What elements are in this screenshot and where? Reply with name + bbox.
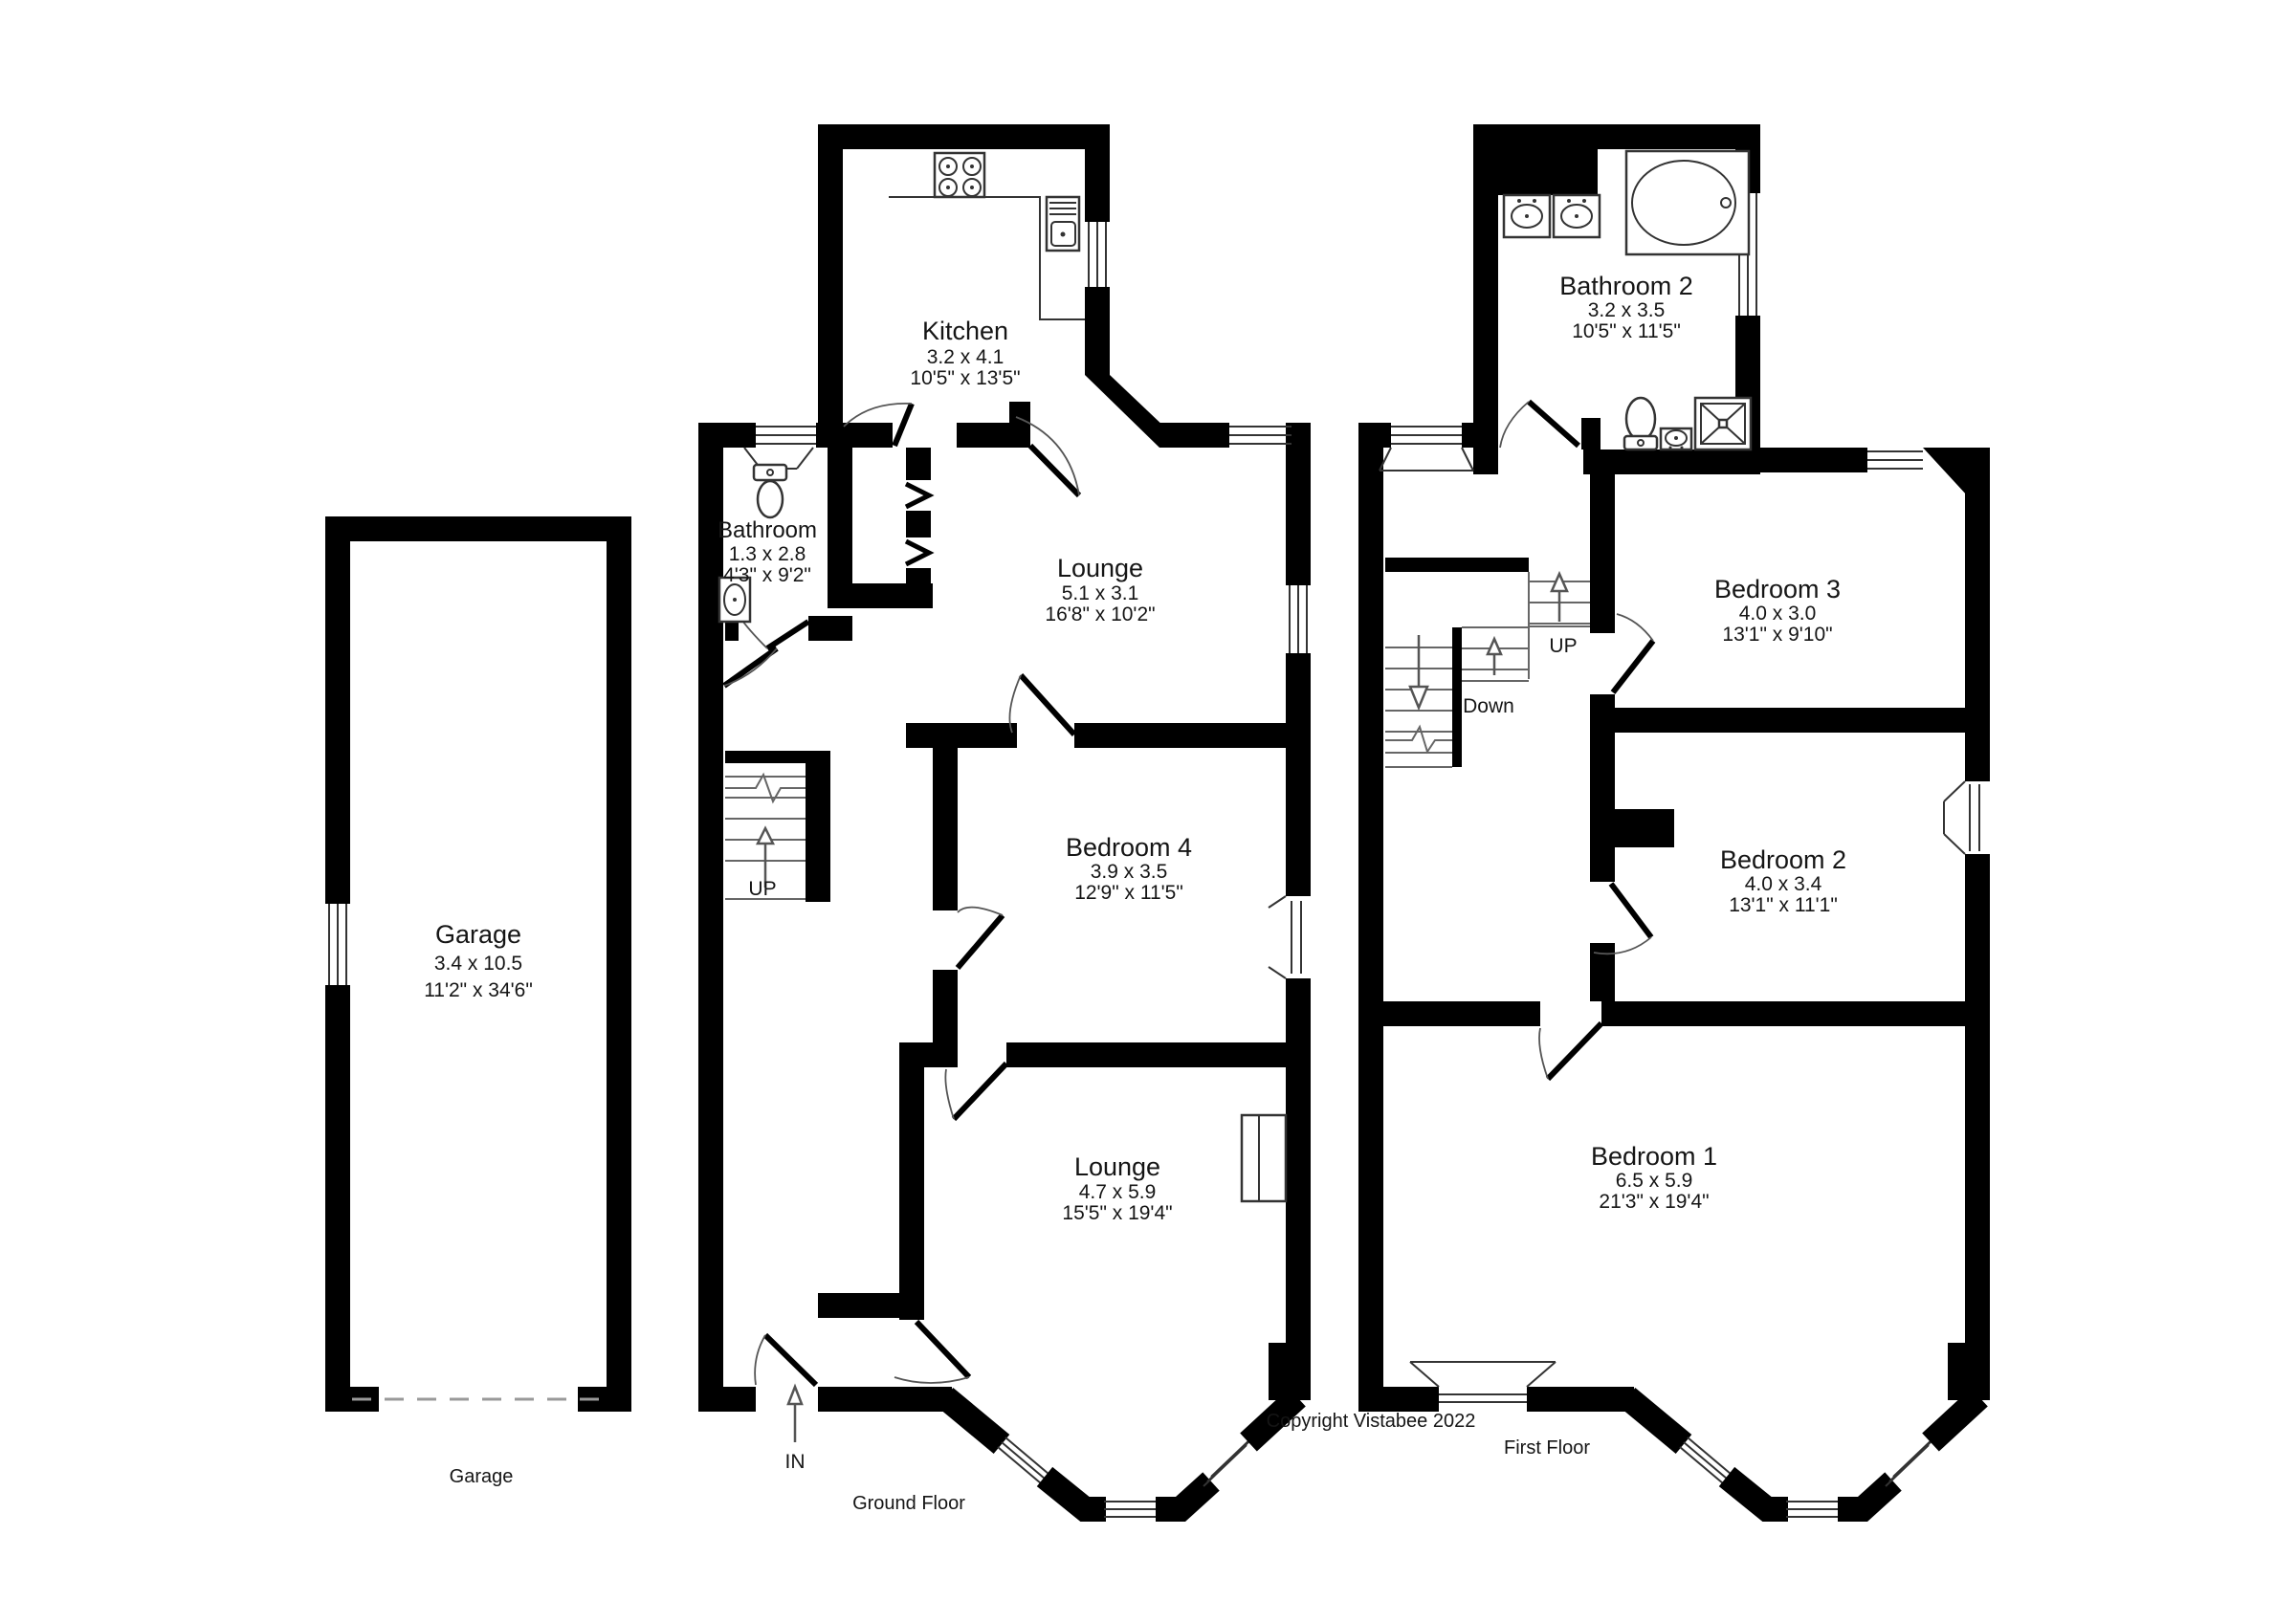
ground-interior-walls — [725, 448, 1311, 1320]
bedroom4-dims-ft: 12'9" x 11'5" — [1074, 882, 1183, 904]
bathroom2-basin-1 — [1504, 195, 1550, 237]
ground-bay-window — [945, 1397, 1297, 1517]
first-floor-plan: UP Down — [1358, 124, 1990, 1517]
bedroom2-dims-m: 4.0 x 3.4 — [1745, 873, 1822, 895]
room-label-bedroom4: Bedroom 4 3.9 x 3.5 12'9" x 11'5" — [1066, 833, 1192, 904]
lounge-bottom-top-door — [945, 1064, 1006, 1119]
floorplan-page: Garage 3.4 x 10.5 11'2" x 34'6" Garage — [0, 0, 2296, 1623]
bedroom3-window — [1867, 451, 1923, 469]
copyright-text: Copyright Vistabee 2022 — [1267, 1411, 1476, 1432]
bedroom4-window — [1269, 896, 1301, 978]
lounge-top-dims-ft: 16'8" x 10'2" — [1045, 603, 1155, 625]
room-label-bathroom2: Bathroom 2 3.2 x 3.5 10'5" x 11'5" — [1559, 272, 1693, 342]
lounge-top-window-top — [1229, 427, 1291, 444]
first-floor-label: First Floor — [1504, 1437, 1590, 1459]
bedroom3-dims-m: 4.0 x 3.0 — [1739, 603, 1817, 625]
floorplan-drawing: Garage 3.4 x 10.5 11'2" x 34'6" Garage — [0, 0, 2296, 1623]
bedroom4-name: Bedroom 4 — [1066, 833, 1192, 862]
room-label-garage: Garage 3.4 x 10.5 11'2" x 34'6" — [424, 920, 533, 1001]
first-bay-window — [1627, 1397, 1979, 1517]
bedroom3-door — [1613, 614, 1653, 692]
bedroom2-name: Bedroom 2 — [1720, 845, 1846, 874]
kitchen-name: Kitchen — [922, 317, 1008, 345]
entrance-door: IN — [755, 1335, 816, 1473]
bathroom2-dims-ft: 10'5" x 11'5" — [1572, 320, 1681, 342]
bedroom3-dims-ft: 13'1" x 9'10" — [1722, 624, 1832, 646]
lounge-top-window-right — [1290, 585, 1307, 653]
room-label-lounge-bottom: Lounge 4.7 x 5.9 15'5" x 19'4" — [1062, 1152, 1172, 1224]
room-label-lounge-top: Lounge 5.1 x 3.1 16'8" x 10'2" — [1045, 554, 1155, 625]
bidet — [1661, 428, 1691, 450]
bedroom1-door — [1539, 1023, 1601, 1079]
shower — [1695, 398, 1751, 450]
bath-tub — [1626, 151, 1749, 254]
kitchen-window — [1089, 222, 1106, 287]
bedroom4-dims-m: 3.9 x 3.5 — [1091, 861, 1168, 883]
kitchen-sink — [1047, 197, 1079, 251]
entrance-label: IN — [785, 1451, 806, 1473]
room-label-bedroom1: Bedroom 1 6.5 x 5.9 21'3" x 19'4" — [1591, 1142, 1717, 1213]
lounge-bottom-name: Lounge — [1074, 1152, 1160, 1181]
lounge-bottom-dims-m: 4.7 x 5.9 — [1079, 1181, 1157, 1203]
lounge-top-dims-m: 5.1 x 3.1 — [1062, 582, 1139, 604]
staircase-first-up: UP — [1529, 572, 1590, 679]
ground-stairs-label: UP — [748, 878, 776, 900]
bedroom4-door — [958, 908, 1003, 968]
garage-floor-label: Garage — [450, 1466, 514, 1487]
garage-dims-ft: 11'2" x 34'6" — [424, 979, 533, 1001]
bedroom2-window — [1944, 781, 1979, 854]
first-interior-walls — [1358, 472, 1965, 1026]
bathroom2-basin-2 — [1554, 195, 1600, 237]
bathroom2-door — [1500, 402, 1578, 448]
kitchen-hob — [935, 153, 984, 197]
bedroom1-name: Bedroom 1 — [1591, 1142, 1717, 1171]
kitchen-dims-m: 3.2 x 4.1 — [927, 346, 1004, 368]
bedroom1-dims-ft: 21'3" x 19'4" — [1599, 1191, 1709, 1213]
room-label-kitchen: Kitchen 3.2 x 4.1 10'5" x 13'5" — [910, 317, 1020, 389]
staircase-ground: UP — [725, 775, 806, 900]
ground-floor-plan: UP — [698, 124, 1311, 1517]
bedroom2-dims-ft: 13'1" x 11'1" — [1729, 894, 1838, 916]
bathroom-dims-m: 1.3 x 2.8 — [729, 543, 806, 565]
room-label-bedroom3: Bedroom 3 4.0 x 3.0 13'1" x 9'10" — [1714, 575, 1841, 646]
bedroom3-name: Bedroom 3 — [1714, 575, 1841, 603]
room-label-bathroom: Bathroom 1.3 x 2.8 4'3" x 9'2" — [717, 517, 817, 586]
landing-window — [1380, 427, 1473, 471]
bathroom2-dims-m: 3.2 x 3.5 — [1588, 299, 1666, 321]
ground-toilet — [754, 465, 786, 517]
garage-name: Garage — [435, 920, 521, 949]
room-label-bedroom2: Bedroom 2 4.0 x 3.4 13'1" x 11'1" — [1720, 845, 1846, 916]
bathroom-dims-ft: 4'3" x 9'2" — [723, 564, 811, 586]
ground-floor-label: Ground Floor — [852, 1493, 965, 1514]
kitchen-dims-ft: 10'5" x 13'5" — [910, 367, 1020, 389]
kitchen-walls — [818, 124, 1186, 448]
garage-plan: Garage 3.4 x 10.5 11'2" x 34'6" Garage — [325, 516, 631, 1487]
first-stairs-up-label: UP — [1549, 635, 1577, 657]
garage-window — [329, 904, 346, 985]
lounge-bottom-window — [1242, 1115, 1286, 1201]
lounge-top-door — [1009, 675, 1074, 735]
porch-lounge-door — [894, 1322, 969, 1383]
garage-dims-m: 3.4 x 10.5 — [434, 953, 522, 975]
bathroom2-name: Bathroom 2 — [1559, 272, 1693, 300]
first-toilet — [1624, 398, 1657, 450]
bedroom1-dims-m: 6.5 x 5.9 — [1616, 1170, 1693, 1192]
lounge-bottom-dims-ft: 15'5" x 19'4" — [1062, 1202, 1172, 1224]
first-stairs-down-label: Down — [1463, 695, 1514, 717]
lounge-top-name: Lounge — [1057, 554, 1143, 582]
bathroom-name: Bathroom — [717, 517, 817, 543]
staircase-first-mid — [1462, 627, 1529, 681]
